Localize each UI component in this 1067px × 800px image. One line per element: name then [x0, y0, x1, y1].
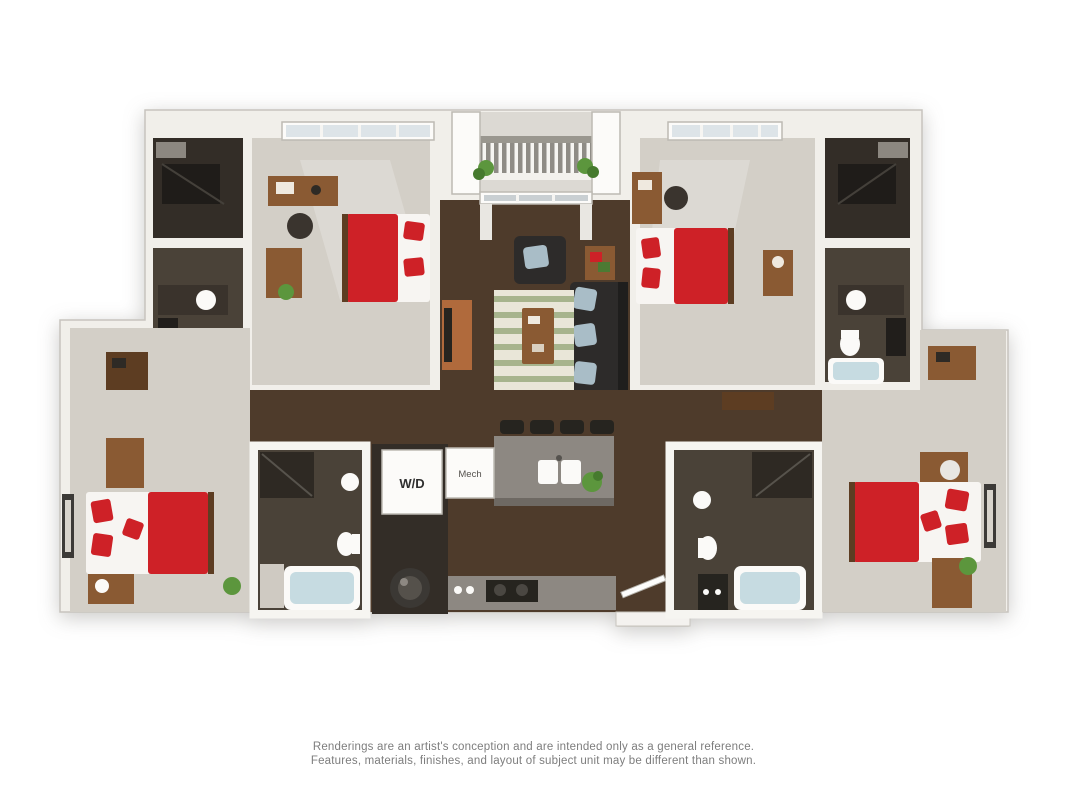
bedroom-4-chair — [940, 460, 960, 480]
armchair — [514, 236, 566, 284]
bedroom-3 — [62, 328, 250, 612]
apartment-plan: W/D Mech — [60, 110, 1008, 626]
bathroom-2-toilet — [840, 330, 860, 356]
canister — [454, 586, 462, 594]
canister — [466, 586, 474, 594]
bedroom-1-window — [282, 122, 434, 140]
bar-stool — [590, 420, 614, 434]
balcony-pillar-left — [452, 112, 480, 194]
bedroom-4-desk — [928, 346, 976, 380]
bathroom-4 — [670, 446, 818, 614]
bedroom-2-desk — [632, 172, 662, 224]
bathroom-2-sink — [846, 290, 866, 310]
bathroom-4-toilet — [698, 536, 717, 560]
bedroom-1-dresser — [266, 248, 302, 300]
bedroom-3-plant — [223, 577, 241, 595]
bedroom-2-bed — [636, 228, 734, 304]
bathroom-1-sink — [196, 290, 216, 310]
bathroom-3 — [254, 446, 366, 614]
bedroom-3-nightstand — [88, 574, 134, 604]
bedroom-4-bed — [849, 482, 981, 562]
tv — [444, 308, 452, 362]
curtain-left — [480, 204, 492, 240]
mechanical-label: Mech — [458, 469, 481, 480]
bathroom-2 — [825, 248, 910, 384]
closet-1-storage-box — [156, 142, 186, 158]
bedroom-4-dresser — [932, 557, 977, 608]
bathroom-4-cabinet — [698, 574, 728, 610]
bathroom-4-closet — [752, 452, 812, 498]
bedroom-3-desk — [106, 352, 148, 390]
disclaimer: Renderings are an artist's conception an… — [0, 740, 1067, 768]
bathroom-3-sink — [341, 473, 359, 491]
coffee-table — [522, 308, 554, 364]
bathroom-3-tile — [260, 564, 284, 608]
closet-2-storage-box — [878, 142, 908, 158]
hall-console-right — [722, 392, 774, 410]
side-table — [585, 246, 615, 280]
washer-dryer-label: W/D — [399, 476, 424, 491]
bedroom-2-nightstand — [763, 250, 793, 296]
balcony-rail-top — [466, 136, 602, 143]
bedroom-4-plant — [959, 557, 977, 575]
disclaimer-line-2: Features, materials, finishes, and layou… — [0, 754, 1067, 768]
curtain-right — [580, 204, 592, 240]
bar-stool — [560, 420, 584, 434]
washer — [390, 568, 430, 608]
mechanical-closet: Mech — [446, 448, 494, 498]
stove — [486, 580, 538, 602]
bedroom-4-side-table — [920, 452, 968, 484]
washer-dryer-closet: W/D — [372, 444, 448, 614]
bathroom-1-vanity — [158, 285, 228, 315]
balcony-pillar-right — [592, 112, 620, 194]
bathroom-2-tub — [828, 358, 884, 384]
bathroom-3-tub — [284, 566, 360, 610]
bedroom-3-dresser — [106, 438, 144, 488]
bathroom-3-closet — [260, 452, 314, 498]
bedroom-1-desk — [268, 176, 338, 206]
disclaimer-line-1: Renderings are an artist's conception an… — [0, 740, 1067, 754]
closet-1 — [153, 138, 243, 238]
bedroom-1 — [252, 122, 434, 385]
bathroom-4-sink — [693, 491, 711, 509]
kitchen-island — [494, 436, 614, 506]
sofa — [570, 282, 628, 394]
floorplan-rendering: W/D Mech — [0, 0, 1067, 800]
tv-console — [442, 300, 472, 370]
floorplan-canvas: W/D Mech — [0, 0, 1067, 800]
bedroom-2-window — [668, 122, 782, 140]
bathroom-4-tub — [734, 566, 806, 610]
bedroom-2-desk-chair — [664, 186, 688, 210]
bedroom-2 — [632, 122, 815, 385]
bedroom-3-picture-frame — [62, 494, 74, 558]
kitchen-counter — [444, 576, 616, 610]
bedroom-4-picture-frame — [984, 484, 996, 548]
balcony — [452, 112, 620, 194]
bathroom-3-toilet — [337, 532, 360, 556]
bedroom-3-bed — [86, 492, 214, 574]
bedroom-1-bed — [342, 214, 430, 302]
bedroom-1-desk-chair — [287, 213, 313, 239]
closet-2 — [825, 138, 910, 238]
bar-stool — [530, 420, 554, 434]
bathroom-2-cabinet — [886, 318, 906, 356]
bar-stool — [500, 420, 524, 434]
